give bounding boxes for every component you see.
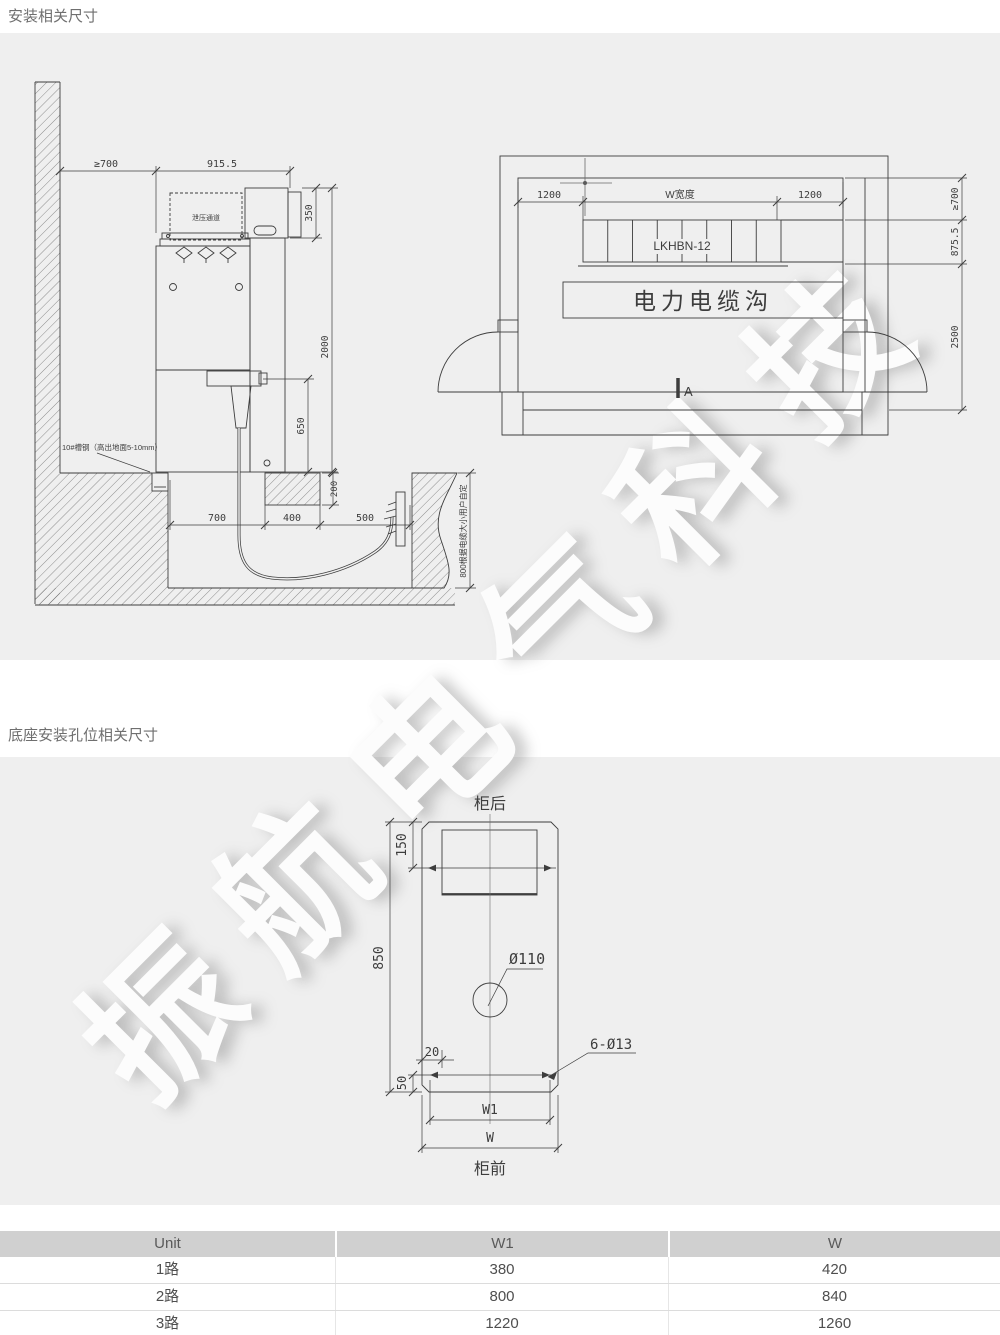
page: 振航电气科技 安装相关尺寸 底座安装孔位相关尺寸 <box>0 0 1000 1335</box>
dim-2500: 2500 <box>950 325 961 348</box>
dim-w1: W1 <box>482 1103 498 1118</box>
dim-850: 850 <box>372 946 387 969</box>
cable-anchor <box>396 492 405 546</box>
table-cell: 840 <box>668 1284 1000 1310</box>
dim-875: 875.5 <box>950 228 961 257</box>
dim-1200-left: 1200 <box>537 190 561 201</box>
dim-50: 50 <box>395 1076 409 1090</box>
table-header-w1: W1 <box>335 1231 668 1257</box>
table-header-row: Unit W1 W <box>0 1231 1000 1257</box>
table-cell: 1路 <box>0 1257 335 1283</box>
table-cell: 800 <box>335 1284 668 1310</box>
dim-cabinet-depth: 915.5 <box>207 159 237 170</box>
table-cell: 3路 <box>0 1311 335 1335</box>
insulator <box>220 247 236 263</box>
dimension-table: Unit W1 W 1路 380 420 2路 800 840 3路 1220 … <box>0 1231 1000 1335</box>
section-title-base: 底座安装孔位相关尺寸 <box>8 724 158 745</box>
door-swing-left <box>438 332 498 392</box>
table-row: 1路 380 420 <box>0 1257 1000 1284</box>
table-cell: 2路 <box>0 1284 335 1310</box>
trench-depth-note: 800根据电缆大小用户自定 <box>458 484 468 577</box>
section-marker-label: A <box>684 384 693 399</box>
dim-700: 700 <box>208 513 226 524</box>
dim-400: 400 <box>283 513 301 524</box>
table-row: 2路 800 840 <box>0 1284 1000 1311</box>
table-header-unit: Unit <box>0 1231 335 1257</box>
dim-650: 650 <box>296 417 307 434</box>
model-label: LKHBN-12 <box>653 239 711 253</box>
base-view-dimensions <box>385 822 558 1153</box>
door-swing-right <box>867 332 927 392</box>
rear-label: 柜后 <box>474 795 506 813</box>
dim-rear-clearance: ≥700 <box>950 187 961 210</box>
dim-20: 20 <box>425 1045 439 1059</box>
relief-duct-label: 泄压通道 <box>192 213 220 222</box>
insulator <box>176 247 192 263</box>
front-label: 柜前 <box>474 1160 506 1178</box>
technical-drawings: ≥700 915.5 350 2000 650 200 700 400 500 … <box>0 0 1000 1335</box>
bolt-holes-label: 6-Ø13 <box>590 1037 632 1053</box>
dim-w-width: W宽度 <box>665 188 694 201</box>
table-row: 3路 1220 1260 <box>0 1311 1000 1335</box>
dim-w: W <box>486 1131 494 1146</box>
table-header-w: W <box>668 1231 1000 1257</box>
door-leaf-right <box>843 320 867 332</box>
door-leaf-left <box>498 320 518 332</box>
wall-hatch <box>35 82 60 604</box>
hole-dia-label: Ø110 <box>509 950 545 968</box>
dim-2000: 2000 <box>320 335 331 358</box>
cable-trench-label: 电力电缆沟 <box>633 288 773 314</box>
trench-right-wall <box>412 473 457 588</box>
insulator <box>198 247 214 263</box>
base-opening <box>442 830 537 895</box>
dim-350: 350 <box>304 204 315 221</box>
dim-wall-clearance: ≥700 <box>94 159 118 170</box>
dim-500: 500 <box>356 513 374 524</box>
channel-steel-pocket <box>152 473 168 491</box>
center-mark <box>560 158 612 216</box>
dim-150: 150 <box>395 833 410 856</box>
cabinet-rear <box>250 238 285 472</box>
base-view-drawing <box>385 814 636 1153</box>
rear-top-box <box>245 188 288 238</box>
table-cell: 1220 <box>335 1311 668 1335</box>
dim-1200-right: 1200 <box>798 190 822 201</box>
channel-steel-note: 10#槽钢（高出地面5-10mm） <box>62 442 162 452</box>
room-inner-wall <box>518 178 843 392</box>
dim-200: 200 <box>330 481 340 497</box>
table-cell: 380 <box>335 1257 668 1283</box>
cabinet-body <box>156 246 250 472</box>
table-cell: 420 <box>668 1257 1000 1283</box>
table-cell: 1260 <box>668 1311 1000 1335</box>
section-title-install: 安装相关尺寸 <box>8 5 98 26</box>
